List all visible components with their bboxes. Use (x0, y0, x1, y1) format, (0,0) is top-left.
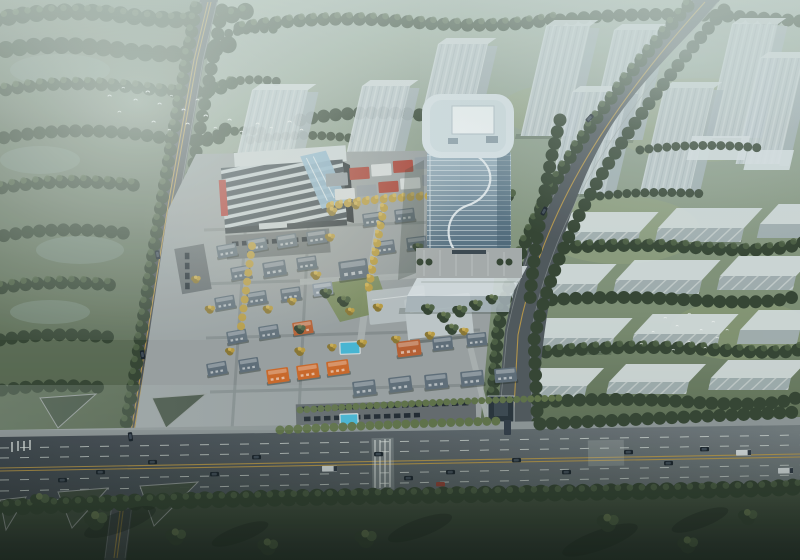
atmosphere (0, 0, 800, 560)
rendering-canvas (0, 0, 800, 560)
aerial-rendering (0, 0, 800, 560)
